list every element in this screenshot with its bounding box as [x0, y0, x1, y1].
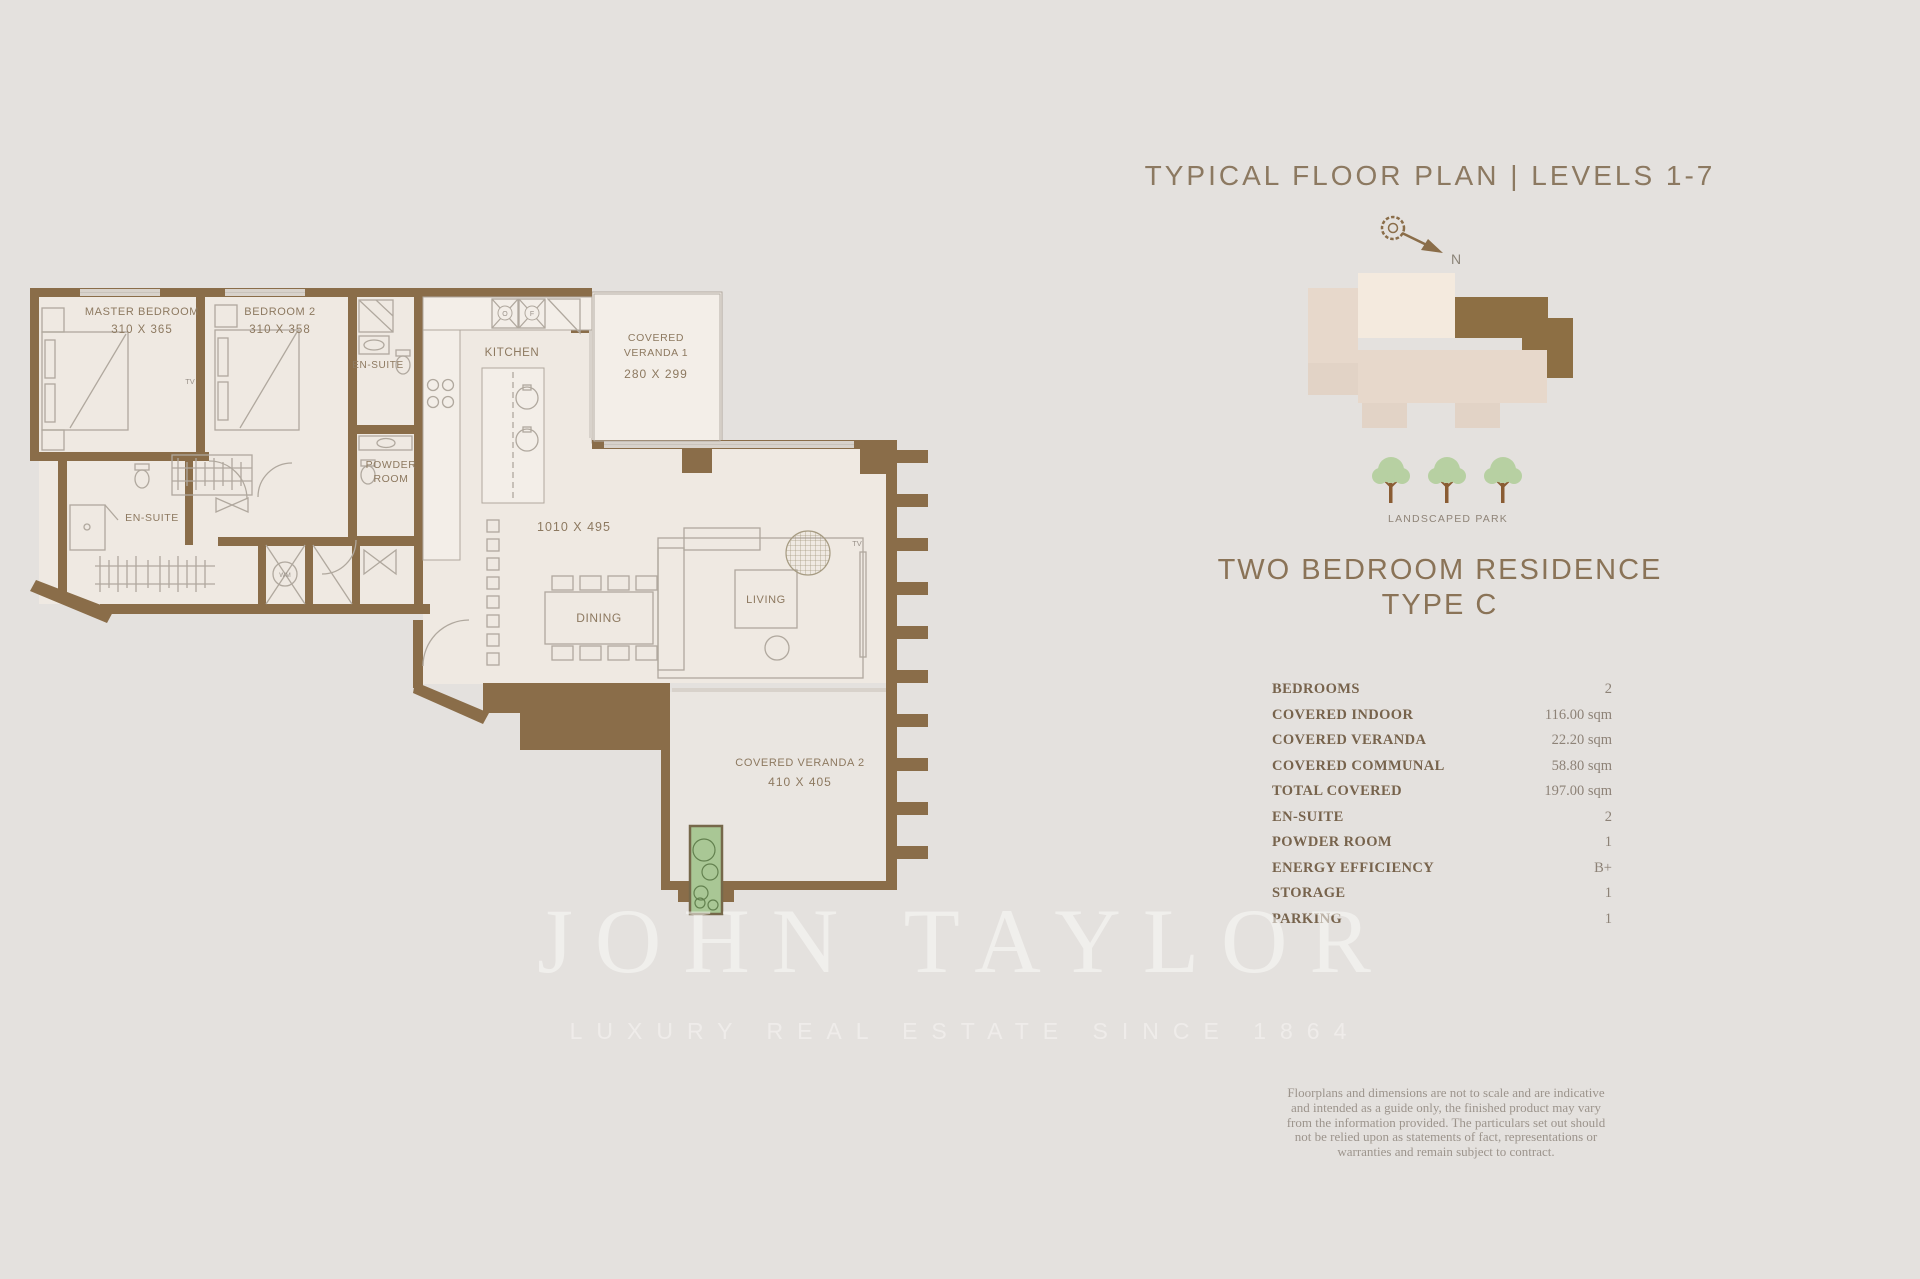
bedroom-2-dims: 310 X 358 [249, 324, 310, 336]
spec-label: TOTAL COVERED [1272, 783, 1402, 800]
spec-row: ENERGY EFFICIENCY B+ [1272, 860, 1612, 886]
spec-value: 2 [1605, 681, 1612, 698]
residence-title-line1: TWO BEDROOM RESIDENCE [1160, 553, 1720, 588]
spec-value: 58.80 sqm [1552, 758, 1612, 775]
veranda-2-dims: 410 X 405 [768, 775, 832, 789]
page-title: TYPICAL FLOOR PLAN | LEVELS 1-7 [1100, 160, 1760, 192]
spec-label: EN-SUITE [1272, 809, 1344, 826]
spec-value: 1 [1605, 885, 1612, 902]
spec-row: BEDROOMS 2 [1272, 681, 1612, 707]
bedroom-2-label: BEDROOM 2 [244, 306, 315, 318]
master-bedroom-label: MASTER BEDROOM [85, 306, 199, 318]
residence-title-line2: TYPE C [1160, 588, 1720, 623]
spec-label: COVERED INDOOR [1272, 707, 1413, 724]
park-trees-icon [1365, 455, 1535, 515]
tree-icon [1428, 457, 1466, 503]
dining-label: DINING [576, 611, 622, 625]
master-ensuite-label: EN-SUITE [125, 512, 179, 524]
spec-value: 2 [1605, 809, 1612, 826]
floor-areas [39, 292, 886, 881]
great-room-dims: 1010 X 495 [537, 520, 611, 534]
spec-label: COVERED COMMUNAL [1272, 758, 1445, 775]
spec-row: TOTAL COVERED 197.00 sqm [1272, 783, 1612, 809]
north-arrow-icon: N [1355, 198, 1485, 273]
floor-plan-drawing: MASTER BEDROOM 310 X 365 BEDROOM 2 310 X… [0, 0, 1000, 960]
planter [690, 826, 722, 914]
residence-title: TWO BEDROOM RESIDENCE TYPE C [1160, 553, 1720, 623]
spec-label: STORAGE [1272, 885, 1345, 902]
spec-label: BEDROOMS [1272, 681, 1360, 698]
spec-row: POWDER ROOM 1 [1272, 834, 1612, 860]
spec-row: EN-SUITE 2 [1272, 809, 1612, 835]
tree-icon [1484, 457, 1522, 503]
spec-value: 1 [1605, 911, 1612, 928]
north-letter: N [1451, 251, 1461, 267]
kitchen-label: KITCHEN [485, 347, 540, 359]
tree-icon [1372, 457, 1410, 503]
spec-label: ENERGY EFFICIENCY [1272, 860, 1434, 877]
park-label: LANDSCAPED PARK [1348, 513, 1548, 525]
tv-label-master: TV [185, 377, 195, 386]
spec-row: STORAGE 1 [1272, 885, 1612, 911]
disclaimer-text: Floorplans and dimensions are not to sca… [1278, 1086, 1614, 1160]
spec-label: PARKING [1272, 911, 1342, 928]
spec-label: COVERED VERANDA [1272, 732, 1426, 749]
facade-fins [897, 450, 928, 859]
powder-room-label-2: ROOM [373, 473, 408, 485]
spec-value: 1 [1605, 834, 1612, 851]
tv-label-living: TV [852, 539, 862, 548]
spec-value: 197.00 sqm [1544, 783, 1612, 800]
living-label: LIVING [746, 594, 786, 606]
veranda-1-dims: 280 X 299 [624, 367, 688, 381]
ensuite-2-label: EN-SUITE [352, 360, 403, 371]
building-key-plan [1300, 268, 1600, 438]
fridge-label: F [530, 311, 534, 318]
veranda-2-label: COVERED VERANDA 2 [735, 757, 864, 769]
spec-row: COVERED COMMUNAL 58.80 sqm [1272, 758, 1612, 784]
spec-value: B+ [1594, 860, 1612, 877]
oven-label: O [502, 311, 508, 318]
veranda-1-label-2: VERANDA 1 [624, 347, 688, 359]
spec-table: BEDROOMS 2 COVERED INDOOR 116.00 sqm COV… [1272, 681, 1612, 936]
spec-value: 22.20 sqm [1552, 732, 1612, 749]
spec-value: 116.00 sqm [1545, 707, 1612, 724]
spec-row: COVERED VERANDA 22.20 sqm [1272, 732, 1612, 758]
brand-tagline: LUXURY REAL ESTATE SINCE 1864 [460, 1018, 1470, 1045]
brochure-page: { "page": {"background": "#e4e1de", "wid… [0, 0, 1920, 1279]
spec-row: COVERED INDOOR 116.00 sqm [1272, 707, 1612, 733]
veranda-1-label-1: COVERED [628, 332, 684, 344]
washing-machine-label: WM [279, 572, 291, 579]
powder-room-label-1: POWDER [366, 459, 417, 471]
spec-label: POWDER ROOM [1272, 834, 1392, 851]
master-bedroom-dims: 310 X 365 [111, 324, 172, 336]
spec-row: PARKING 1 [1272, 911, 1612, 937]
